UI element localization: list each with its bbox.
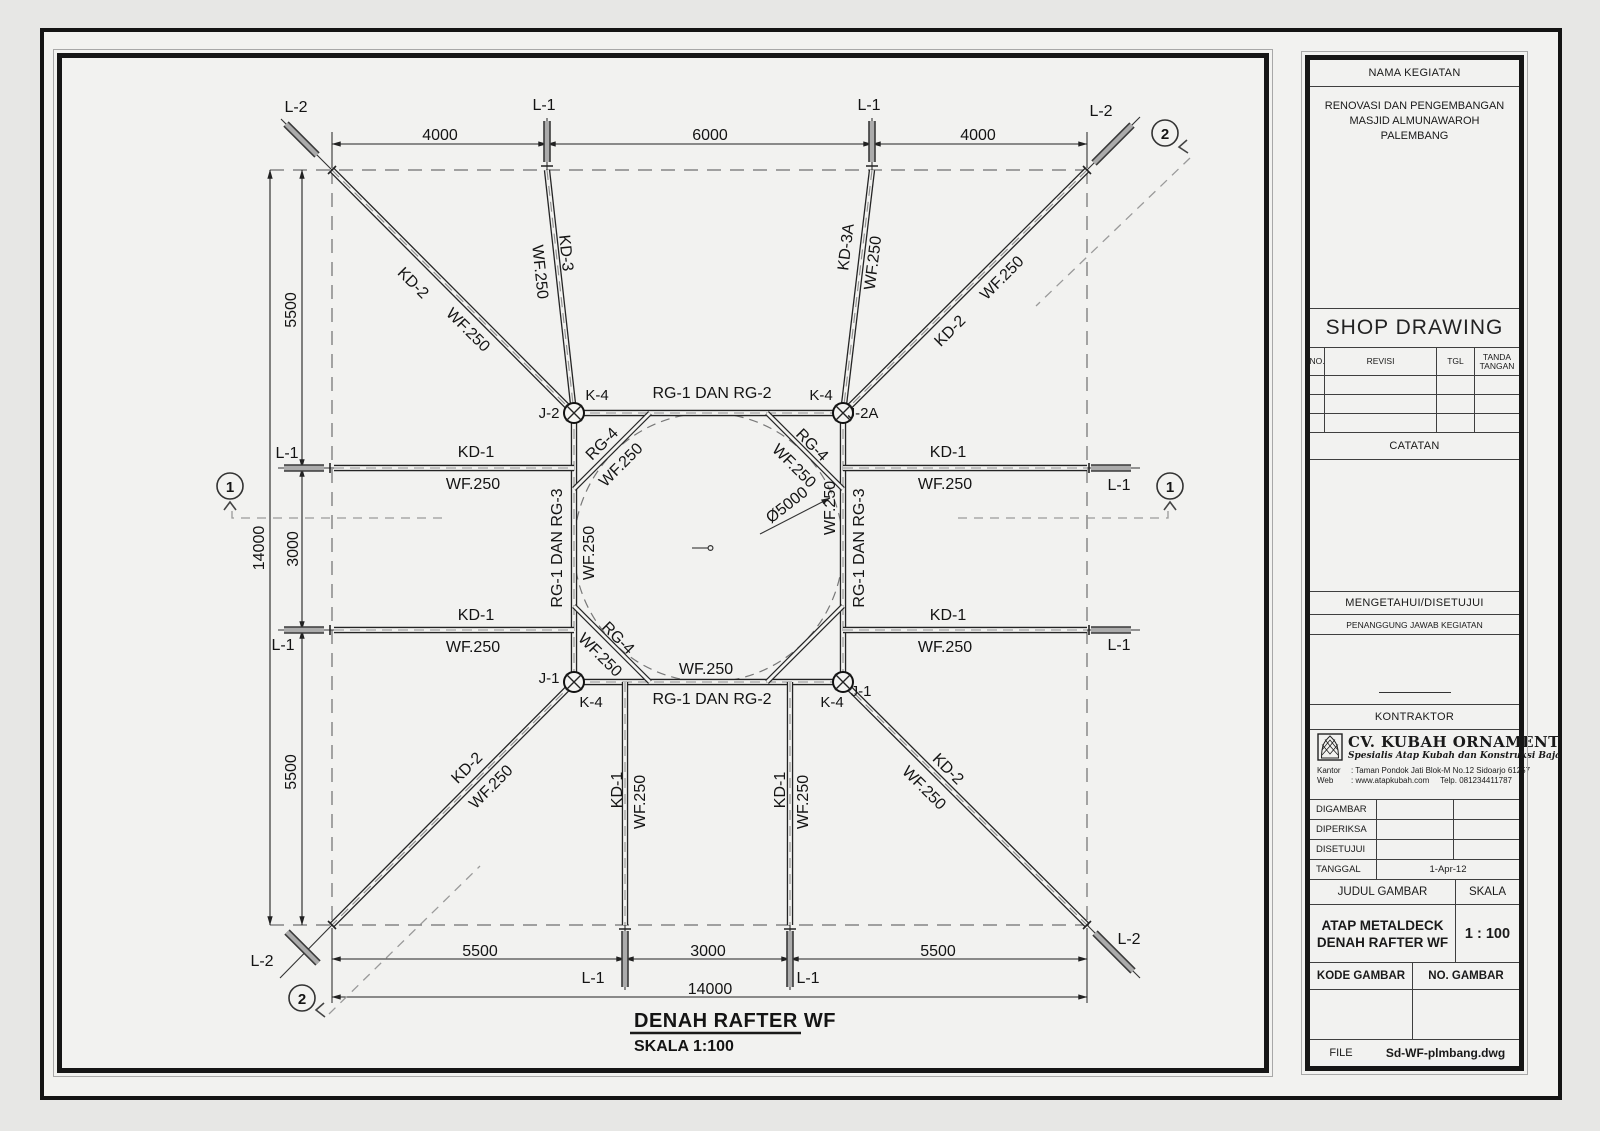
label-j2a: J-2A <box>848 405 879 422</box>
grid-lines <box>270 170 1090 925</box>
member-kd3a <box>843 170 872 413</box>
label-l1-mid-left-lower: L-1 <box>271 637 294 654</box>
plate-l2-top-right <box>1094 125 1132 163</box>
label-wf250-kd1-bl: WF.250 <box>632 775 649 829</box>
kubah-logo-icon <box>1317 733 1343 766</box>
dim-3000-bottom: 3000 <box>690 943 726 960</box>
judul-skala-header: JUDUL GAMBARSKALA <box>1310 880 1519 905</box>
label-kd2-bl: KD-2 <box>448 749 486 787</box>
node-k4-top-left <box>564 403 584 423</box>
title-block: NAMA KEGIATAN RENOVASI DAN PENGEMBANGAN … <box>1305 55 1524 1071</box>
company-address: Kantor : Taman Pondok Jati Blok-M No.12 … <box>1317 766 1512 776</box>
label-wf250-kd3: WF.250 <box>528 244 551 300</box>
label-wf250-col-right: WF.250 <box>822 481 839 535</box>
contractor-company: CV. KUBAH ORNAMENT Spesialis Atap Kubah … <box>1310 730 1519 800</box>
signature-area <box>1310 635 1519 705</box>
company-name: CV. KUBAH ORNAMENT <box>1348 733 1561 751</box>
diperiksa-row: DIPERIKSA <box>1310 820 1519 840</box>
penanggung-jawab-label: PENANGGUNG JAWAB KEGIATAN <box>1310 615 1519 635</box>
revision-row-2 <box>1310 395 1519 414</box>
file-row: FILE Sd-WF-plmbang.dwg <box>1310 1040 1519 1066</box>
label-kd3a: KD-3A <box>835 222 858 271</box>
label-j1-right: J-1 <box>851 683 872 700</box>
label-wf250-bottom-beam: WF.250 <box>679 661 733 678</box>
rev-col-revisi: REVISI <box>1325 348 1437 375</box>
nama-kegiatan-header: NAMA KEGIATAN <box>1310 60 1519 87</box>
label-wf250-kd2-tl: WF.250 <box>442 305 492 355</box>
label-rg13-right: RG-1 DAN RG-3 <box>851 488 868 607</box>
company-tagline: Spesialis Atap Kubah dan Konstruksi Baja <box>1348 751 1561 761</box>
label-wf250-kd1-ll: WF.250 <box>446 639 500 656</box>
label-wf250-kd1-lu: WF.250 <box>446 476 500 493</box>
label-l2-bottom-left: L-2 <box>250 953 273 970</box>
company-web-telp: Web : www.atapkubah.com Telp. 0812344117… <box>1317 776 1512 786</box>
dim-6000: 6000 <box>692 127 728 144</box>
label-k4-bl: K-4 <box>579 694 602 711</box>
node-k4-bottom-left <box>564 672 584 692</box>
brace-rg4-bottom-right <box>767 606 843 682</box>
label-l1-bottom-left: L-1 <box>581 970 604 987</box>
digambar-row: DIGAMBAR <box>1310 800 1519 820</box>
label-wf250-kd1-br: WF.250 <box>795 775 812 829</box>
label-l2-top-right: L-2 <box>1089 103 1112 120</box>
revision-row-3 <box>1310 414 1519 433</box>
section-number-1-right: 1 <box>1166 479 1174 496</box>
signature-line <box>1379 692 1451 693</box>
catatan-header: CATATAN <box>1310 433 1519 460</box>
dim-14000-left: 14000 <box>251 526 268 571</box>
disetujui-row: DISETUJUI <box>1310 840 1519 860</box>
label-rg12-bottom: RG-1 DAN RG-2 <box>652 691 771 708</box>
label-wf250-col-left: WF.250 <box>581 526 598 580</box>
plate-l2-bottom-left <box>287 932 318 963</box>
drawing-scale-note: SKALA 1:100 <box>634 1038 734 1055</box>
dim-14000-bottom: 14000 <box>688 981 733 998</box>
rev-col-no: NO. <box>1310 348 1325 375</box>
label-k4-tr: K-4 <box>809 387 832 404</box>
kontraktor-header: KONTRAKTOR <box>1310 705 1519 730</box>
revision-header: NO. REVISI TGL TANDATANGAN <box>1310 348 1519 376</box>
mengetahui-header: MENGETAHUI/DISETUJUI <box>1310 592 1519 615</box>
revision-row-1 <box>1310 376 1519 395</box>
dim-5500-left-top: 5500 <box>283 292 300 328</box>
sheet: L-2 L-1 L-1 L-2 4000 6000 4000 KD-2 WF.2… <box>0 0 1600 1131</box>
label-wf250-kd1-ru: WF.250 <box>918 476 972 493</box>
rev-col-tgl: TGL <box>1437 348 1475 375</box>
scale-value: 1 : 100 <box>1456 905 1519 962</box>
dim-3000-left: 3000 <box>285 531 302 567</box>
section-number-2-top: 2 <box>1161 126 1169 143</box>
tanggal-value: 1-Apr-12 <box>1377 860 1519 879</box>
label-kd1-bottom-right: KD-1 <box>772 772 789 809</box>
label-k4-tl: K-4 <box>585 387 608 404</box>
label-l2-top-left: L-2 <box>284 99 307 116</box>
label-rg12-top: RG-1 DAN RG-2 <box>652 385 771 402</box>
label-wf250-kd1-rl: WF.250 <box>918 639 972 656</box>
project-line-3: PALEMBANG <box>1310 129 1519 144</box>
drawing-title-cell: ATAP METALDECKDENAH RAFTER WF 1 : 100 <box>1310 905 1519 963</box>
label-j2: J-2 <box>539 405 560 422</box>
dim-5500-bottom-right: 5500 <box>920 943 956 960</box>
member-kd2-bottom-right <box>843 682 1087 925</box>
label-k4-br: K-4 <box>820 694 843 711</box>
label-l1-top-right: L-1 <box>857 97 880 114</box>
center-mark <box>692 546 713 551</box>
project-line-1: RENOVASI DAN PENGEMBANGAN <box>1310 99 1519 114</box>
plate-l2-top-left <box>286 124 317 155</box>
project-line-2: MASJID ALMUNAWAROH <box>1310 114 1519 129</box>
tanggal-row: TANGGAL 1-Apr-12 <box>1310 860 1519 880</box>
label-kd1-bottom-left: KD-1 <box>609 772 626 809</box>
label-kd1-left-lower: KD-1 <box>458 607 495 624</box>
member-kd2-bottom-left <box>332 682 574 925</box>
section-number-1-left: 1 <box>226 479 234 496</box>
label-l1-mid-right-upper: L-1 <box>1107 477 1130 494</box>
rev-col-tanda: TANDATANGAN <box>1475 348 1519 375</box>
project-name: RENOVASI DAN PENGEMBANGAN MASJID ALMUNAW… <box>1310 87 1519 309</box>
dim-5500-bottom-left: 5500 <box>462 943 498 960</box>
section-marker-2-bottom-left <box>289 866 480 1017</box>
label-kd1-right-upper: KD-1 <box>930 444 967 461</box>
kode-no-header: KODE GAMBARNO. GAMBAR <box>1310 963 1519 990</box>
dim-4000-left: 4000 <box>422 127 458 144</box>
label-kd2-tl: KD-2 <box>394 264 432 302</box>
label-rg13-left: RG-1 DAN RG-3 <box>549 488 566 607</box>
section-marker-1-right <box>957 473 1183 518</box>
label-l1-mid-left-upper: L-1 <box>275 445 298 462</box>
drawing-labels: L-2 L-1 L-1 L-2 4000 6000 4000 KD-2 WF.2… <box>226 97 1174 1055</box>
label-wf250-kd2-tr: WF.250 <box>977 253 1027 303</box>
drawing-title: DENAH RAFTER WF <box>634 1010 836 1032</box>
catatan-body <box>1310 460 1519 592</box>
sheet-drawing-title: ATAP METALDECKDENAH RAFTER WF <box>1310 905 1456 962</box>
label-kd1-left-upper: KD-1 <box>458 444 495 461</box>
dim-5500-left-bottom: 5500 <box>283 754 300 790</box>
shop-drawing-title: SHOP DRAWING <box>1310 309 1519 348</box>
label-j1-left: J-1 <box>539 670 560 687</box>
file-value: Sd-WF-plmbang.dwg <box>1372 1046 1519 1060</box>
dimensions <box>270 132 1087 1003</box>
label-kd1-right-lower: KD-1 <box>930 607 967 624</box>
label-l1-mid-right-lower: L-1 <box>1107 637 1130 654</box>
label-l2-bottom-right: L-2 <box>1117 931 1140 948</box>
file-label: FILE <box>1310 1047 1372 1059</box>
dim-4000-right: 4000 <box>960 127 996 144</box>
label-l1-top-left: L-1 <box>532 97 555 114</box>
section-number-2-bottom: 2 <box>298 991 306 1008</box>
label-l1-bottom-right: L-1 <box>796 970 819 987</box>
kode-no-values <box>1310 990 1519 1040</box>
